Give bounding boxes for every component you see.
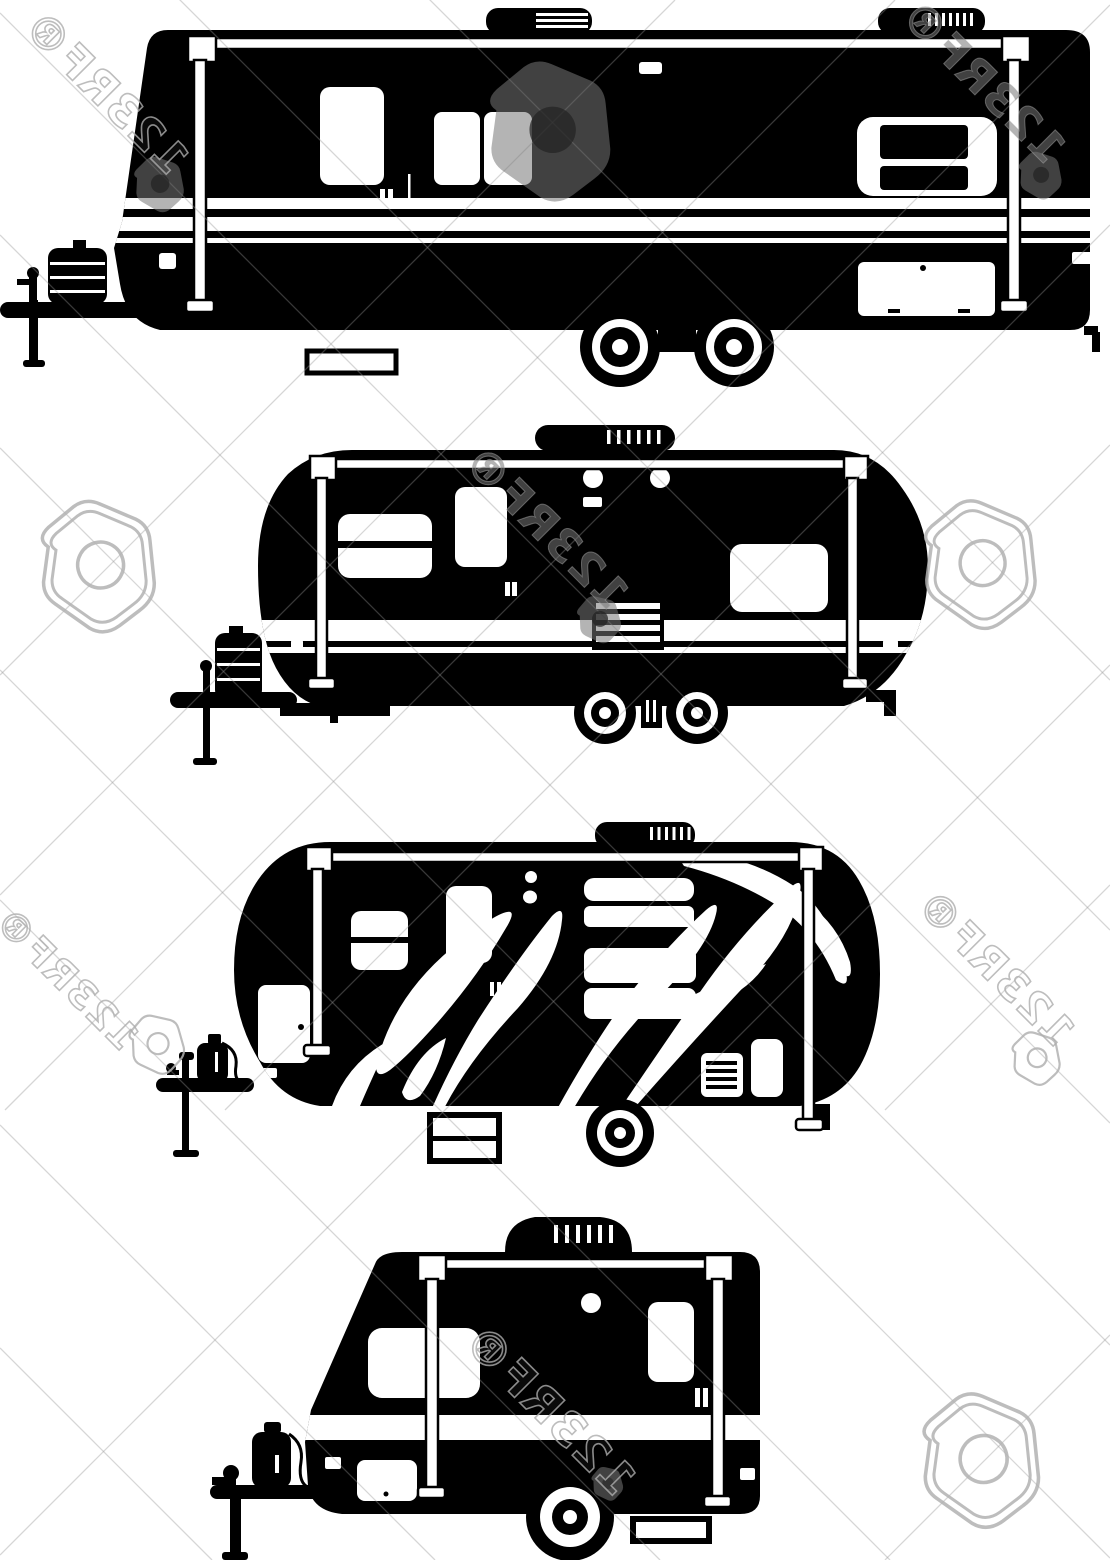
rear-bumper [1084, 326, 1100, 352]
awning-rail [443, 1259, 709, 1269]
side-pinstripe [100, 238, 1100, 243]
clearance-light [523, 891, 537, 904]
porthole-window [583, 468, 603, 488]
window [434, 112, 480, 185]
wheel-icon [580, 307, 660, 387]
awning-elbow [1002, 36, 1030, 62]
tongue-jack-icon [193, 660, 217, 765]
tongue-jack-icon [166, 1052, 199, 1157]
window [648, 1302, 694, 1382]
awning-pole [194, 60, 206, 302]
propane-tank-icon [252, 1422, 306, 1488]
watermark-text: 123RF® [0, 898, 147, 1060]
awning-pole-foot [304, 1045, 331, 1056]
vent-hatch [583, 497, 602, 507]
door-handle [695, 1388, 700, 1407]
door-handle [388, 189, 393, 206]
awning-pole-foot [418, 1487, 445, 1498]
gas-hose [289, 1434, 306, 1486]
watermark-brand-text: 123RF® [0, 898, 147, 1060]
travel-trailer-3-silhouette [156, 822, 880, 1167]
storage-door-lock [384, 1492, 389, 1497]
awning-elbow [418, 1255, 446, 1281]
window-pane [584, 878, 694, 901]
window [320, 87, 384, 185]
wheel-icon [694, 307, 774, 387]
roof-vent-icon [505, 1217, 632, 1252]
wheel-icon [586, 1099, 654, 1167]
service-hatch [740, 1468, 755, 1480]
holding-tank [280, 703, 390, 716]
door-handle [497, 982, 501, 996]
clearance-light [525, 871, 537, 883]
service-hatch [258, 1068, 277, 1078]
awning-elbow [844, 456, 868, 480]
propane-tanks-icon [48, 240, 107, 304]
porthole-window [581, 1293, 601, 1313]
roof-vent-icon [535, 425, 675, 451]
axle-equalizer [641, 695, 662, 728]
entry-step-ladder [427, 1112, 502, 1164]
wheel-icon [574, 682, 636, 744]
awning-rail [325, 852, 805, 862]
awning-pole [803, 869, 814, 1121]
service-hatch [1072, 252, 1093, 264]
service-hatch [883, 640, 898, 649]
window-pane [584, 988, 696, 1019]
watermark-logo-outline-icon [25, 488, 170, 645]
drain-stub [330, 716, 338, 723]
propane-tanks-icon [215, 626, 262, 700]
window-divider [351, 937, 408, 943]
storage-door [858, 262, 995, 316]
door-handle [490, 982, 494, 996]
awning-pole [426, 1279, 438, 1489]
awning-rail [330, 459, 848, 469]
awning-elbow [310, 456, 336, 480]
service-hatch [159, 253, 176, 269]
watermark-logo-outline-icon [909, 488, 1051, 641]
propane-tank-icon [197, 1034, 240, 1082]
awning-pole-foot [308, 678, 335, 689]
window [446, 886, 492, 963]
side-stripe [100, 217, 1100, 231]
travel-trailer-4-silhouette [210, 1217, 765, 1560]
door-handle [505, 582, 510, 596]
rear-step [630, 1516, 712, 1544]
awning-pole-foot [1000, 300, 1028, 312]
awning-elbow [705, 1255, 733, 1281]
window-pane [584, 948, 696, 983]
watermark-text: 123RF® [906, 879, 1084, 1057]
storage-door [751, 1039, 783, 1097]
window-pane [880, 125, 968, 159]
awning-rail [205, 38, 1010, 49]
awning-pole [847, 478, 858, 680]
window [730, 544, 828, 612]
watermark-brand-text: 123RF® [906, 879, 1084, 1057]
awning-pole-foot [186, 300, 214, 312]
awning-pole-foot [704, 1496, 731, 1507]
door-handle [512, 582, 517, 596]
awning-elbow [799, 847, 823, 871]
tongue-jack-icon [222, 1499, 248, 1560]
awning-pole [312, 869, 323, 1047]
wheel-icon [666, 682, 728, 744]
door-seam [408, 174, 411, 206]
porthole-window [650, 468, 670, 488]
door-handle [703, 1388, 708, 1407]
awning-elbow [188, 36, 216, 62]
awning-pole-foot [796, 1119, 823, 1130]
side-stripe [100, 198, 1100, 209]
door-lock [298, 1024, 304, 1030]
louver-vent [701, 1053, 743, 1097]
window-pane [880, 166, 968, 190]
stock-illustration-page: 123RF® 123RF® 123RF® 123RF® 123RF® 123RF… [0, 0, 1110, 1560]
axle-equalizer [658, 330, 696, 352]
marker-light [639, 62, 662, 74]
service-hatch [291, 640, 303, 649]
awning-pole [316, 478, 327, 680]
awning-elbow [306, 847, 332, 871]
illustration-canvas: 123RF® 123RF® 123RF® 123RF® 123RF® 123RF… [0, 0, 1110, 1560]
travel-trailer-2-silhouette [170, 425, 940, 765]
storage-door-lock [920, 265, 926, 271]
